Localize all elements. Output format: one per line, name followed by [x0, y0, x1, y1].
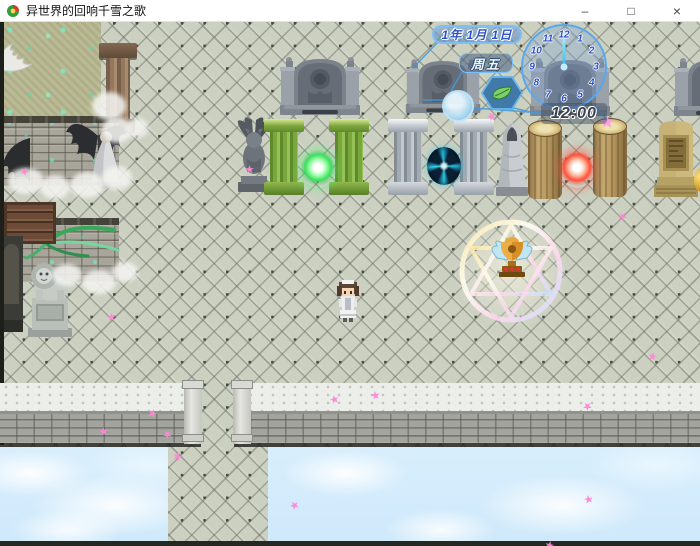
pillar-shaft	[460, 132, 488, 182]
pillar-base	[264, 182, 304, 195]
smoke-puff	[82, 270, 116, 294]
leaf-icon	[490, 84, 514, 102]
clock-number: 7	[545, 89, 551, 100]
stone-pillar	[391, 119, 425, 195]
moss-pillar	[332, 119, 366, 195]
pillar-shaft	[270, 132, 298, 182]
ledge-top	[234, 383, 700, 414]
screen-left-edge	[0, 22, 4, 445]
pillar-cap	[388, 119, 428, 132]
pillar-base	[388, 182, 428, 195]
clock-center-dot	[561, 64, 568, 71]
minimize-button[interactable]: –	[562, 0, 608, 21]
game-viewport[interactable]: 121234567891011 1年 1月 1日 周五 12:00	[0, 22, 700, 546]
clock-face: 121234567891011	[521, 24, 607, 110]
sky-clouds	[268, 447, 700, 541]
moon-phase-icon	[442, 90, 474, 122]
portal-vortex[interactable]	[427, 147, 461, 185]
pillar-cap	[264, 119, 304, 132]
screen-bottom-edge	[0, 541, 700, 546]
pillar-shaft	[394, 132, 422, 182]
smoke-puff	[102, 166, 132, 190]
stone-pillar	[457, 119, 491, 195]
ledge-brick-face	[234, 414, 700, 443]
season-hexagon	[481, 76, 523, 110]
clock-number: 8	[534, 78, 540, 89]
trophy-emblem[interactable]	[489, 234, 535, 288]
clock-number: 3	[593, 62, 599, 73]
ledge-top	[0, 383, 201, 414]
date-panel: 1年 1月 1日	[432, 25, 522, 44]
weekday-panel: 周五	[459, 53, 513, 73]
time-panel: 12:00	[541, 103, 607, 124]
clock-number: 10	[531, 46, 542, 57]
clock-number: 5	[577, 89, 583, 100]
tomb-monument	[277, 55, 363, 119]
parapet-ledge	[0, 383, 201, 447]
moss-pillar	[267, 119, 301, 195]
clock-number: 1	[577, 34, 583, 45]
ledge-column	[233, 380, 251, 444]
wood-log-pillar	[528, 123, 562, 199]
pillar-base	[454, 182, 494, 195]
app-icon	[6, 4, 20, 18]
smoke-puff	[126, 118, 148, 138]
roof-column-cap	[99, 43, 137, 58]
window-controls: – □ ×	[562, 0, 700, 21]
cloaked-statue	[492, 121, 532, 197]
smoke-puff	[40, 175, 70, 199]
smoke-puff	[8, 168, 44, 194]
close-button[interactable]: ×	[654, 0, 700, 21]
gold-monument	[654, 119, 698, 199]
parapet-ledge	[234, 383, 700, 447]
smoke-puff	[70, 172, 104, 198]
pillar-base	[329, 182, 369, 195]
ledge-brick-face	[0, 414, 201, 443]
pillar-shaft	[335, 132, 363, 182]
clock-number: 4	[589, 78, 595, 89]
window-title: 异世界的回响千雪之歌	[26, 2, 562, 19]
wood-log-pillar	[593, 121, 627, 197]
clock-number: 11	[543, 34, 553, 45]
clock-number: 9	[529, 62, 535, 73]
smoke-puff	[92, 92, 126, 120]
sky-clouds	[0, 447, 168, 541]
game-window: 异世界的回响千雪之歌 – □ ×	[0, 0, 700, 546]
maximize-button[interactable]: □	[608, 0, 654, 21]
tomb-monument	[671, 56, 700, 120]
player-character[interactable]	[334, 280, 362, 322]
pillar-cap	[329, 119, 369, 132]
titlebar: 异世界的回响千雪之歌 – □ ×	[0, 0, 700, 22]
smoke-puff	[52, 264, 82, 286]
green-orb[interactable]	[301, 150, 335, 188]
red-orb[interactable]	[560, 150, 594, 188]
clock-number: 12	[558, 30, 569, 41]
white-wing-icon	[0, 40, 38, 76]
smoke-puff	[112, 262, 138, 282]
clock-number: 2	[589, 46, 595, 57]
ledge-column	[184, 380, 202, 444]
